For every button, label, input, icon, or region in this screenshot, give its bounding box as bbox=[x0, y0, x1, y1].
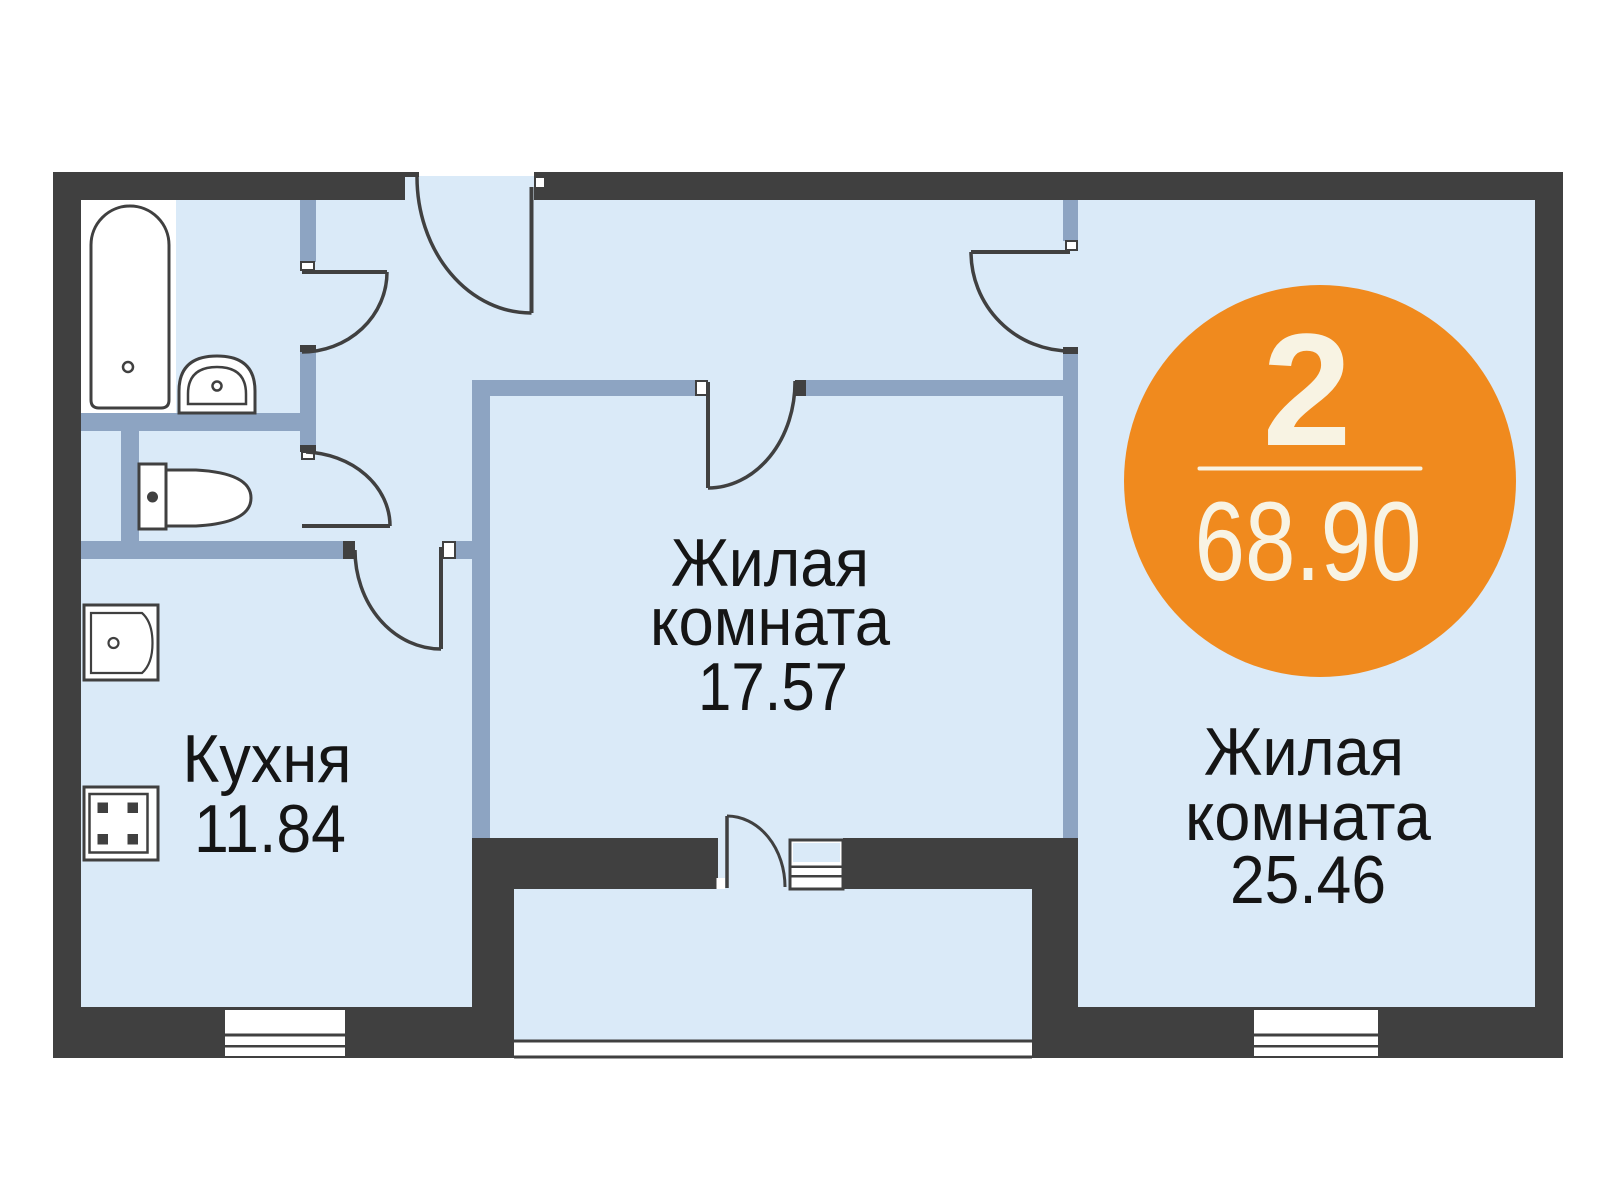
svg-text:68.90: 68.90 bbox=[1195, 479, 1422, 604]
svg-text:11.84: 11.84 bbox=[194, 791, 346, 867]
svg-text:17.57: 17.57 bbox=[698, 649, 848, 725]
svg-text:25.46: 25.46 bbox=[1230, 842, 1386, 918]
svg-text:2: 2 bbox=[1263, 300, 1352, 479]
svg-text:Кухня: Кухня bbox=[183, 721, 352, 797]
